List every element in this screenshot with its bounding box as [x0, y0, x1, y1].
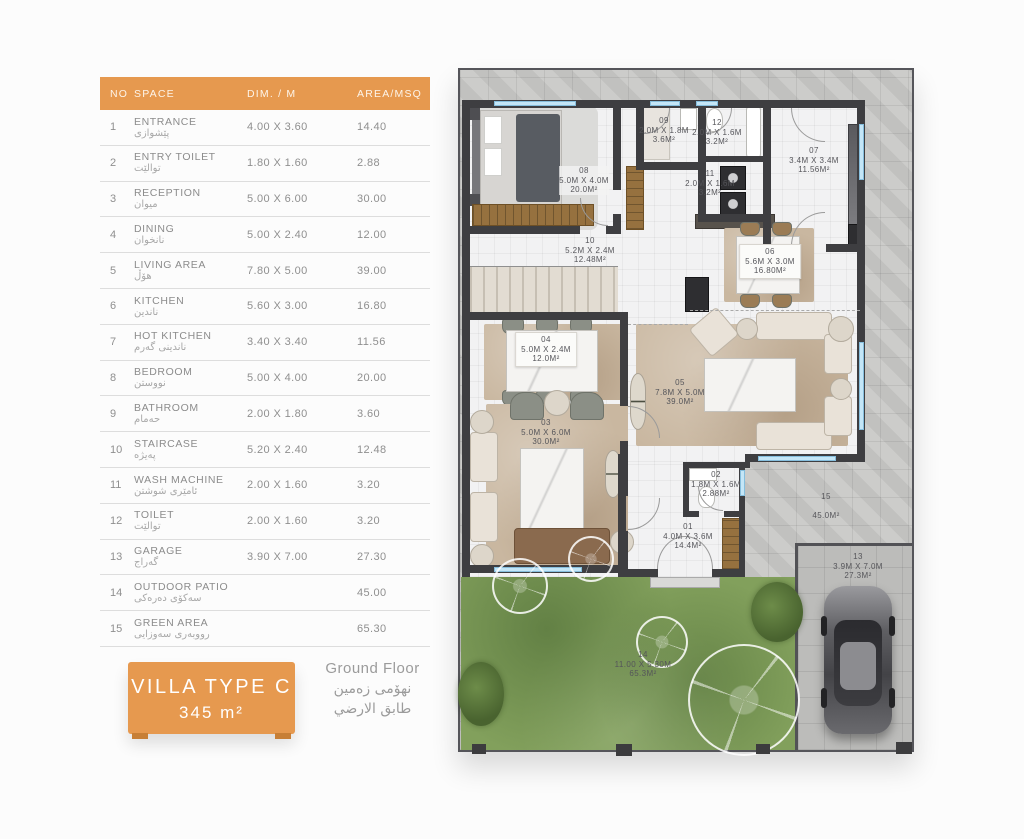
- villa-type-title: VILLA TYPE C: [128, 676, 295, 699]
- car-wheel: [889, 616, 895, 636]
- bed-headboard: [472, 112, 480, 204]
- space-name: GARAGE: [134, 545, 247, 557]
- side-table: [470, 410, 494, 434]
- space-dimension: 2.00 X 1.80: [247, 408, 357, 420]
- wall-bedroom-bottom: [606, 226, 621, 234]
- header-area: AREA/MSQ: [357, 88, 430, 100]
- header-dim: DIM. / M: [247, 88, 357, 100]
- space-dimension: 5.20 X 2.40: [247, 444, 357, 456]
- room-label-09: 092.0M X 1.8M3.6M²: [639, 116, 689, 145]
- table-row: 3 RECEPTION میوان 5.00 X 6.00 30.00: [100, 182, 430, 218]
- space-dimension: 7.80 X 5.00: [247, 265, 357, 277]
- table-row: 7 HOT KITCHEN ناندینی گەرم 3.40 X 3.40 1…: [100, 325, 430, 361]
- room-label-14: 1411.00 X 5.30M65.3M²: [615, 650, 672, 679]
- space-name: WASH MACHINE: [134, 474, 247, 486]
- space-area: 2.88: [357, 157, 430, 169]
- row-number: 4: [100, 229, 134, 241]
- space-name: ENTRANCE: [134, 116, 247, 128]
- table-row: 2 ENTRY TOILET توالێت 1.80 X 1.60 2.88: [100, 146, 430, 182]
- space-area: 14.40: [357, 121, 430, 133]
- space-name-local: پەیژە: [134, 450, 247, 462]
- window: [494, 101, 576, 106]
- space-name-local: حەمام: [134, 414, 247, 426]
- wall-bedroom-bottom: [462, 226, 580, 234]
- space-dimension: 5.00 X 4.00: [247, 372, 357, 384]
- space-dimension: 5.00 X 2.40: [247, 229, 357, 241]
- space-name-local: هۆڵ: [134, 271, 247, 283]
- space-name-local: توالێت: [134, 163, 247, 175]
- space-table: NO SPACE DIM. / M AREA/MSQ 1 ENTRANCE پێ…: [100, 77, 430, 647]
- room-label-12: 122.0M X 1.6M3.2M²: [692, 118, 742, 147]
- space-dimension: 2.00 X 1.60: [247, 479, 357, 491]
- header-space: SPACE: [134, 88, 247, 100]
- space-name: RECEPTION: [134, 187, 247, 199]
- room-label-02: 021.8M X 1.6M2.88M²: [691, 470, 741, 499]
- threshold-dashed: [628, 324, 688, 325]
- space-name-local: توالێت: [134, 521, 247, 533]
- wall-left: [462, 100, 470, 577]
- space-name-local: نانخوان: [134, 235, 247, 247]
- room-label-03: 035.0M X 6.0M30.0M²: [521, 418, 571, 447]
- living-table: [704, 358, 796, 412]
- space-name: ENTRY TOILET: [134, 151, 247, 163]
- row-number: 7: [100, 336, 134, 348]
- space-dimension: 5.00 X 6.00: [247, 193, 357, 205]
- wall-hall-left: [620, 531, 628, 573]
- wall-bedroom-right: [613, 100, 621, 190]
- space-area: 11.56: [357, 336, 430, 348]
- row-number: 11: [100, 479, 134, 491]
- row-number: 1: [100, 121, 134, 133]
- space-name-local: گەراج: [134, 557, 247, 569]
- table-row: 1 ENTRANCE پێشوازی 4.00 X 3.60 14.40: [100, 110, 430, 146]
- space-name: GREEN AREA: [134, 617, 247, 629]
- row-number: 2: [100, 157, 134, 169]
- room-label-13: 133.9M X 7.0M27.3M²: [833, 552, 883, 581]
- row-number: 13: [100, 551, 134, 563]
- wall-hotkitchen-bottom: [826, 244, 865, 252]
- space-area: 3.20: [357, 515, 430, 527]
- room-label-11: 112.0M X 1.6M3.2M²: [685, 169, 735, 198]
- space-area: 16.80: [357, 300, 430, 312]
- fence-post: [616, 744, 632, 756]
- wall-hall-left: [620, 312, 628, 406]
- living-sofa-top: [756, 312, 832, 340]
- row-number: 5: [100, 265, 134, 277]
- floor-title-ku: نهۆمی زەمین: [300, 681, 445, 697]
- row-number: 6: [100, 300, 134, 312]
- car-wheel: [889, 688, 895, 708]
- tree-bushy: [751, 582, 803, 642]
- badge-ribbon-right: [275, 733, 291, 739]
- room-label-10: 105.2M X 2.4M12.48M²: [565, 236, 615, 265]
- threshold-dashed: [690, 310, 860, 311]
- tree-bushy: [458, 662, 504, 726]
- room-label-06: 065.6M X 3.0M16.80M²: [739, 244, 801, 279]
- space-area: 3.20: [357, 479, 430, 491]
- space-area: 3.60: [357, 408, 430, 420]
- fence-post: [896, 742, 912, 754]
- window: [696, 101, 718, 106]
- space-dimension: 2.00 X 1.60: [247, 515, 357, 527]
- fridge: [685, 277, 709, 312]
- table-row: 4 DINING نانخوان 5.00 X 2.40 12.00: [100, 217, 430, 253]
- table-header: NO SPACE DIM. / M AREA/MSQ: [100, 77, 430, 110]
- space-name: KITCHEN: [134, 295, 247, 307]
- room-label-05: 057.8M X 5.0M39.0M²: [655, 378, 705, 407]
- car-wheel: [821, 688, 827, 708]
- room-label-15: 1545.0M²: [812, 492, 839, 521]
- tree-sketch-large: [688, 644, 800, 756]
- table-row: 11 WASH MACHINE ئامێری شوشتن 2.00 X 1.60…: [100, 468, 430, 504]
- space-area: 45.00: [357, 587, 430, 599]
- side-table: [736, 318, 758, 340]
- wall-wash-bottom: [698, 214, 771, 222]
- row-number: 9: [100, 408, 134, 420]
- space-area: 20.00: [357, 372, 430, 384]
- side-table: [828, 316, 854, 342]
- space-name: HOT KITCHEN: [134, 330, 247, 342]
- space-name-local: ناندین: [134, 307, 247, 319]
- space-area: 27.30: [357, 551, 430, 563]
- entrance-closet: [722, 518, 740, 570]
- room-label-07: 073.4M X 3.4M11.56M²: [789, 146, 839, 175]
- car: [824, 586, 892, 734]
- table-row: 9 BATHROOM حەمام 2.00 X 1.80 3.60: [100, 396, 430, 432]
- space-area: 39.00: [357, 265, 430, 277]
- header-no: NO: [100, 88, 134, 100]
- window: [650, 101, 680, 106]
- space-dimension: 3.40 X 3.40: [247, 336, 357, 348]
- reception-chair: [570, 392, 604, 420]
- floor-title-block: Ground Floor نهۆمی زەمین طابق الارضي: [300, 660, 445, 717]
- living-sofa-bottom: [756, 422, 832, 450]
- row-number: 12: [100, 515, 134, 527]
- space-dimension: 4.00 X 3.60: [247, 121, 357, 133]
- table-row: 12 TOILET توالێت 2.00 X 1.60 3.20: [100, 504, 430, 540]
- living-armchair: [824, 396, 852, 436]
- space-area: 30.00: [357, 193, 430, 205]
- row-number: 10: [100, 444, 134, 456]
- window: [859, 342, 864, 430]
- bedroom-wardrobe: [472, 204, 594, 226]
- table-row: 15 GREEN AREA رووبەری سەوزایی 65.30: [100, 611, 430, 647]
- wall-toilet02-bottom: [683, 511, 699, 517]
- wall-toilet02-top: [683, 462, 750, 468]
- reception-chair: [510, 392, 544, 420]
- space-name-local: سەکۆی دەرەکی: [134, 593, 247, 605]
- space-area: 12.00: [357, 229, 430, 241]
- space-name-local: رووبەری سەوزایی: [134, 629, 247, 641]
- room-label-08: 085.0M X 4.0M20.0M²: [559, 166, 609, 195]
- space-dimension: 1.80 X 1.60: [247, 157, 357, 169]
- bed-blanket: [516, 114, 560, 202]
- bathtub: [746, 104, 761, 160]
- space-name: OUTDOOR PATIO: [134, 581, 247, 593]
- space-area: 12.48: [357, 444, 430, 456]
- reception-sofa: [470, 432, 498, 482]
- wall-dining-top: [462, 312, 628, 320]
- wall-toilet02-bottom: [724, 511, 745, 517]
- kitchen-chair: [740, 294, 760, 308]
- pillow: [484, 148, 502, 176]
- row-number: 3: [100, 193, 134, 205]
- kitchen-chair: [740, 222, 760, 236]
- space-name: STAIRCASE: [134, 438, 247, 450]
- table-body: 1 ENTRANCE پێشوازی 4.00 X 3.60 14.40 2 E…: [100, 110, 430, 647]
- space-name-local: میوان: [134, 199, 247, 211]
- kitchen-chair: [772, 294, 792, 308]
- floor-title-ar: طابق الارضي: [300, 701, 445, 717]
- room-label-01: 014.0M X 3.6M14.4M²: [663, 522, 713, 551]
- table-row: 10 STAIRCASE پەیژە 5.20 X 2.40 12.48: [100, 432, 430, 468]
- space-name-local: ناندینی گەرم: [134, 342, 247, 354]
- space-name: BEDROOM: [134, 366, 247, 378]
- window: [859, 124, 864, 180]
- villa-type-badge: VILLA TYPE C 345 m²: [128, 662, 295, 734]
- space-name: BATHROOM: [134, 402, 247, 414]
- car-roof: [840, 642, 876, 690]
- entry-step: [650, 577, 720, 588]
- window: [758, 456, 836, 461]
- car-wheel: [821, 616, 827, 636]
- villa-area: 345 m²: [128, 703, 295, 723]
- row-number: 15: [100, 623, 134, 635]
- space-dimension: 3.90 X 7.00: [247, 551, 357, 563]
- table-row: 8 BEDROOM نووستن 5.00 X 4.00 20.00: [100, 361, 430, 397]
- pillow: [484, 116, 502, 144]
- table-row: 13 GARAGE گەراج 3.90 X 7.00 27.30: [100, 540, 430, 576]
- hall-closet: [626, 166, 644, 230]
- side-table: [544, 390, 570, 416]
- table-row: 5 LIVING AREA هۆڵ 7.80 X 5.00 39.00: [100, 253, 430, 289]
- row-number: 14: [100, 587, 134, 599]
- row-number: 8: [100, 372, 134, 384]
- wall-hall-left: [620, 441, 628, 496]
- staircase: [470, 266, 618, 314]
- table-row: 14 OUTDOOR PATIO سەکۆی دەرەکی 45.00: [100, 575, 430, 611]
- fence-post: [756, 744, 770, 754]
- badge-ribbon-left: [132, 733, 148, 739]
- space-name: DINING: [134, 223, 247, 235]
- space-area: 65.30: [357, 623, 430, 635]
- wall-hotkitchen-left: [763, 100, 771, 252]
- kitchen-chair: [772, 222, 792, 236]
- wall-toilet02-left: [683, 462, 689, 517]
- space-name-local: نووستن: [134, 378, 247, 390]
- space-name-local: ئامێری شوشتن: [134, 486, 247, 498]
- reception-sofa: [470, 492, 498, 542]
- room-label-04: 045.0M X 2.4M12.0M²: [515, 332, 577, 367]
- tree-sketch: [568, 536, 614, 582]
- wall-toilet12-bottom: [698, 156, 768, 162]
- floor-plan: 014.0M X 3.6M14.4M² 021.8M X 1.6M2.88M² …: [458, 66, 934, 766]
- space-dimension: 5.60 X 3.00: [247, 300, 357, 312]
- tree-sketch: [492, 558, 548, 614]
- space-name: TOILET: [134, 509, 247, 521]
- side-table: [830, 378, 852, 400]
- floor-title-en: Ground Floor: [300, 660, 445, 677]
- space-name: LIVING AREA: [134, 259, 247, 271]
- space-name-local: پێشوازی: [134, 128, 247, 140]
- fence-post: [472, 744, 486, 754]
- table-row: 6 KITCHEN ناندین 5.60 X 3.00 16.80: [100, 289, 430, 325]
